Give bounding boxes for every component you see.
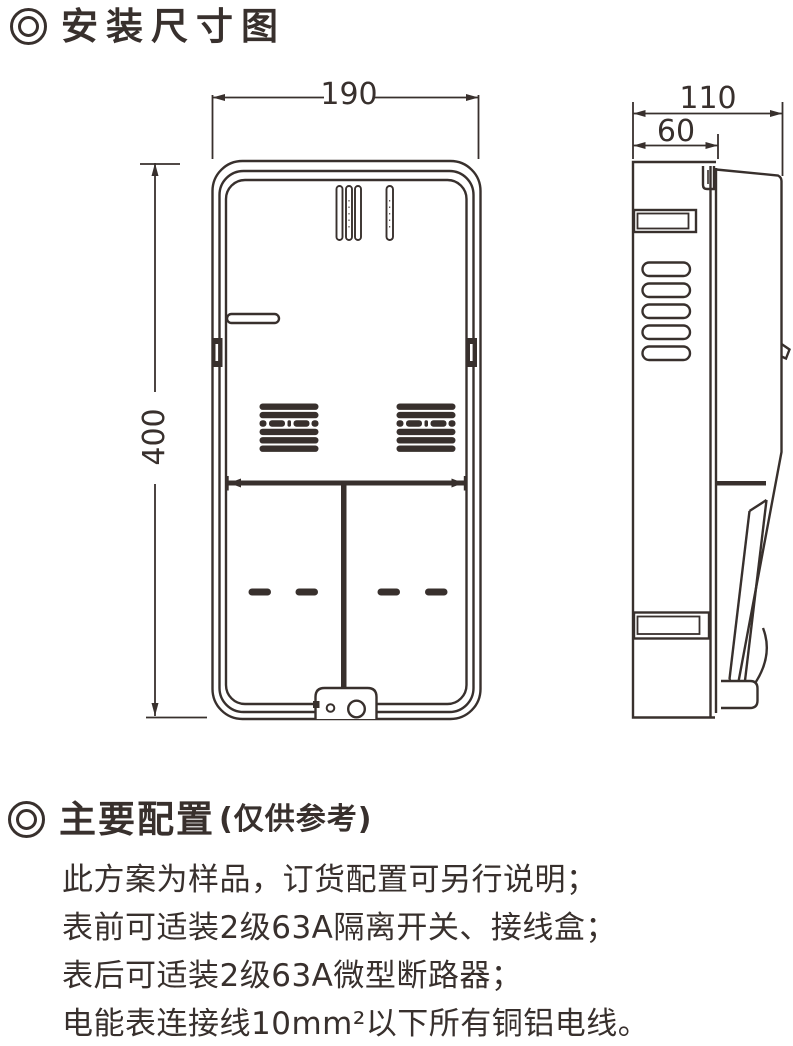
top-vent-slots [337,186,394,240]
right-vent-grille [397,404,456,452]
lock-screw-hole [327,704,335,712]
side-vent-slots [643,263,691,361]
dimension-label-front-height: 400 [137,408,172,465]
side-view-drawing [633,162,790,718]
door-pull-slots [249,589,448,596]
config-line: 电能表连接线10mm²以下所有铜铝电线。 [62,1000,782,1046]
config-heading-text: 主要配置 [59,801,215,838]
vertical-divider [341,483,347,688]
front-view-drawing [212,161,481,719]
left-vent-grille [260,404,319,452]
upper-left-slot [227,314,279,323]
dimension-label-side-total-depth: 110 [679,81,736,116]
open-lower-door [721,500,767,708]
double-circle-bullet-icon [8,801,45,838]
lock-plate [313,688,377,719]
front-dimensions: 190 400 [137,77,479,718]
door-profile [716,170,782,696]
dimension-label-front-width: 190 [320,77,377,112]
config-line: 此方案为样品，订货配置可另行说明； [62,856,782,904]
door-bottom-foot [721,681,758,708]
side-upper-recess [634,210,696,232]
door-split-line [716,481,766,486]
catalog-page: 安装尺寸图 [0,0,793,1046]
config-line: 表前可适装2级63A隔离开关、接线盒； [62,904,782,952]
config-section-heading: 主要配置 (仅供参考) [8,801,372,838]
lock-cylinder [348,701,365,718]
right-hinge-latch [466,338,478,367]
left-hinge-latch [212,338,223,367]
config-line: 表后可适装2级63A微型断路器； [62,952,782,1000]
installation-dimension-drawing: 190 400 [0,0,793,790]
side-lower-recess [634,613,709,639]
dimension-label-side-base-depth: 60 [657,114,695,149]
config-heading-note: (仅供参考) [219,805,372,835]
config-text-block: 此方案为样品，订货配置可另行说明； 表前可适装2级63A隔离开关、接线盒； 表后… [62,856,782,1046]
